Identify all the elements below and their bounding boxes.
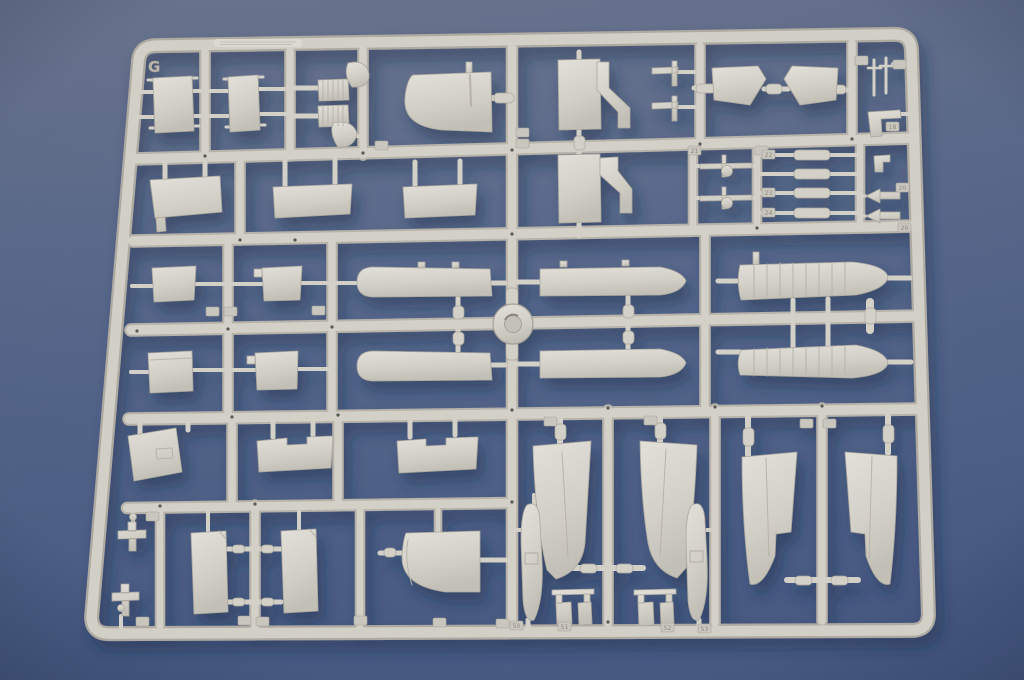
sleeve-19 xyxy=(831,576,848,585)
sleeve-9 xyxy=(453,332,464,345)
part-number-label-26: 53 xyxy=(701,626,709,633)
hatch-panel-1 xyxy=(152,266,196,302)
gate-mark-19 xyxy=(510,500,513,503)
part-number-label-5: 22 xyxy=(765,152,773,159)
sprue-photo-canvas: 2122232418202650515253G xyxy=(0,0,1024,680)
cowling-panel-top xyxy=(405,72,492,132)
gate-mark-9 xyxy=(330,325,333,328)
wing-pin-1 xyxy=(418,262,425,268)
sleeve-4 xyxy=(766,84,782,94)
sleeve-8 xyxy=(623,305,634,318)
door-panel-a xyxy=(191,531,228,614)
sleeve-25 xyxy=(794,169,830,179)
sleeve-11 xyxy=(865,308,876,324)
boss-1 xyxy=(722,198,733,209)
wing-center-upper-left xyxy=(357,267,492,297)
gate-mark-21 xyxy=(293,238,296,241)
wing-center-upper-right xyxy=(540,267,686,296)
part-number-tag-17 xyxy=(136,617,149,626)
sleeve-28 xyxy=(384,548,396,557)
part-number-label-23: 50 xyxy=(513,623,521,630)
bulkhead-slab-top xyxy=(558,59,601,130)
gate-mark-16 xyxy=(820,404,823,407)
canopy-panel-3 xyxy=(403,184,477,218)
gate-mark-11 xyxy=(230,415,233,418)
sleeve-26 xyxy=(794,188,830,198)
sleeve-17 xyxy=(616,564,633,573)
sleeve-27 xyxy=(794,208,830,218)
part-number-tag-14 xyxy=(224,307,237,316)
gate-mark-12 xyxy=(336,413,339,416)
sleeve-7 xyxy=(453,306,464,319)
gate-mark-13 xyxy=(510,408,513,411)
gate-mark-10 xyxy=(135,329,138,332)
wing-center-lower-right xyxy=(540,349,686,378)
instrument-panel-b xyxy=(228,75,260,132)
part-number-tag-12 xyxy=(893,60,906,69)
gate-mark-20 xyxy=(606,620,609,623)
part-number-label-10: 26 xyxy=(901,225,909,232)
sleeve-16 xyxy=(580,564,597,573)
part-number-label-25: 52 xyxy=(664,625,672,632)
part-number-tag-29 xyxy=(544,417,557,426)
embossed-text-strip xyxy=(214,39,302,47)
door-panel-b xyxy=(281,529,318,613)
sleeve-18 xyxy=(795,576,812,585)
part-number-tag-11 xyxy=(855,56,868,65)
runner-letter: G xyxy=(148,58,160,76)
gate-mark-0 xyxy=(203,154,206,157)
part-number-tag-28 xyxy=(823,419,836,428)
part-number-tag-1 xyxy=(516,128,529,137)
sleeve-13 xyxy=(655,423,666,439)
sleeve-10 xyxy=(623,331,634,344)
part-number-label-8: 18 xyxy=(889,124,897,131)
model-kit-sprue-photo: 2122232418202650515253G xyxy=(0,0,1024,680)
flap-panel-1 xyxy=(128,428,182,481)
wing-pin-4 xyxy=(622,260,629,266)
part-number-tag-16 xyxy=(146,512,159,521)
sleeve-24 xyxy=(794,150,830,160)
part-number-label-24: 51 xyxy=(561,624,569,631)
boss-2 xyxy=(130,514,137,521)
sleeve-1 xyxy=(494,93,514,103)
sleeve-23 xyxy=(261,598,274,606)
wing-center-lower-left xyxy=(357,351,492,381)
boss-0 xyxy=(722,166,733,177)
sleeve-20 xyxy=(232,545,245,553)
part-number-tag-30 xyxy=(644,416,657,425)
part-number-tag-0 xyxy=(375,141,388,150)
canopy-panel-2 xyxy=(273,184,352,218)
part-number-tag-2 xyxy=(516,139,529,148)
gate-mark-5 xyxy=(238,238,241,241)
sleeve-21 xyxy=(261,545,274,553)
sleeve-0 xyxy=(574,136,585,150)
sleeve-12 xyxy=(555,424,566,440)
sleeve-14 xyxy=(743,428,754,446)
gate-mark-1 xyxy=(361,151,364,154)
wing-pin-2 xyxy=(452,262,459,268)
sleeve-5 xyxy=(506,288,518,306)
part-number-label-6: 23 xyxy=(765,190,773,197)
bulkhead-slab-mid xyxy=(558,154,601,223)
gate-mark-18 xyxy=(158,504,161,507)
gate-mark-8 xyxy=(226,327,229,330)
sleeve-15 xyxy=(883,425,894,443)
part-number-tag-21 xyxy=(433,618,446,627)
wing-pin-3 xyxy=(560,261,567,267)
part-number-label-7: 24 xyxy=(765,210,773,217)
gate-mark-7 xyxy=(755,226,758,229)
part-number-tag-18 xyxy=(238,616,251,625)
float-half-a xyxy=(521,504,542,621)
gate-mark-15 xyxy=(713,405,716,408)
gate-mark-17 xyxy=(253,502,256,505)
gate-mark-14 xyxy=(606,406,609,409)
part-number-label-9: 20 xyxy=(899,185,907,192)
sleeve-6 xyxy=(506,342,518,360)
cowl-slot xyxy=(470,75,471,106)
instrument-panel-a xyxy=(153,76,194,133)
runner-4 xyxy=(127,503,512,508)
engine-bracket-a xyxy=(346,62,369,87)
wing-outer-lower xyxy=(738,345,888,378)
part-number-tag-15 xyxy=(312,306,325,315)
part-number-tag-27 xyxy=(800,419,813,428)
hatch-panel-3 xyxy=(148,351,193,393)
part-number-label-3: 21 xyxy=(691,148,699,155)
part-number-tag-13 xyxy=(206,307,219,316)
part-number-tag-20 xyxy=(354,616,367,625)
part-number-tag-22 xyxy=(496,619,509,628)
gate-mark-6 xyxy=(510,232,513,235)
gate-mark-2 xyxy=(510,148,513,151)
part-number-tag-19 xyxy=(256,617,269,626)
boss-3 xyxy=(118,605,125,612)
gate-mark-3 xyxy=(698,142,701,145)
sleeve-22 xyxy=(232,598,245,606)
gate-mark-4 xyxy=(850,137,853,140)
